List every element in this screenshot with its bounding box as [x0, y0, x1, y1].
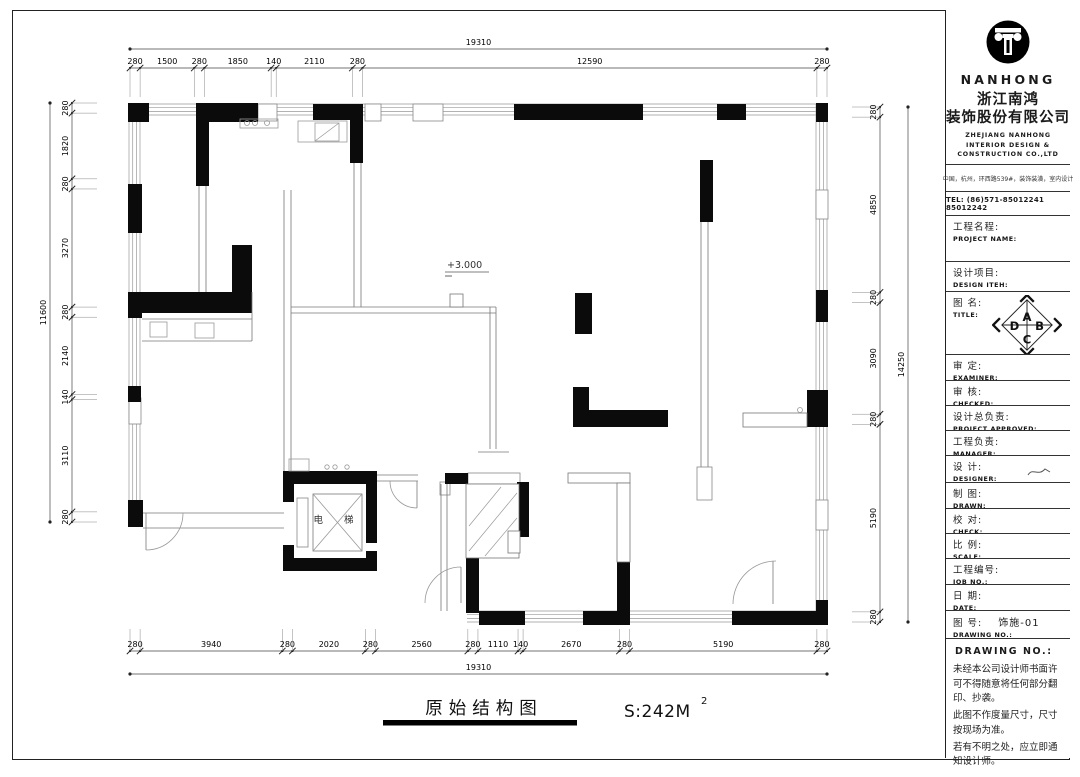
dim-label: 2140	[61, 346, 70, 366]
title-block-fields: 工程名程:PROJECT NAME:设计项目:DESIGN ITEH:图 名:T…	[946, 216, 1070, 639]
company-name-cn-2: 装饰股份有限公司	[946, 109, 1070, 127]
field-label-cn: 设计总负责:	[953, 409, 1010, 423]
dim-label: 1110	[488, 640, 508, 649]
orientation-compass-icon: ABCD	[992, 295, 1062, 355]
plan-area-label: S:242M	[624, 702, 691, 722]
dim-label: 5190	[869, 508, 878, 528]
dim-label: 2560	[411, 640, 431, 649]
field-label-cn: 审 核:	[953, 384, 982, 398]
field-examiner: 审 定:EXAMINER:	[946, 355, 1070, 381]
dim-label: 280	[869, 412, 878, 427]
field-label-cn: 图 名:	[953, 295, 982, 309]
door-swings	[146, 481, 776, 604]
field-date: 日 期:DATE:	[946, 585, 1070, 611]
dim-label: 1500	[157, 57, 177, 66]
company-name-en-3: CONSTRUCTION CO.,LTD	[946, 150, 1070, 159]
dim-label: 280	[869, 104, 878, 119]
dim-label: 280	[350, 57, 365, 66]
company-name-cn-1: 浙江南鸿	[946, 91, 1070, 109]
drawing-notes-header: DRAWING NO.:	[955, 646, 1063, 657]
dim-label: 280	[465, 640, 480, 649]
elevator-label: 电 梯	[313, 514, 362, 526]
dim-label: 280	[280, 640, 295, 649]
field-label-cn: 制 图:	[953, 486, 982, 500]
field-label-cn: 校 对:	[953, 512, 982, 526]
dim-label: 1850	[228, 57, 248, 66]
dim-label: 4850	[869, 195, 878, 215]
level-marker: +3.000	[447, 260, 482, 271]
dim-label: 280	[61, 176, 70, 191]
field-manager: 工程负责:MANAGER:	[946, 431, 1070, 456]
dim-label: 14250	[897, 352, 906, 377]
dim-label: 3090	[869, 348, 878, 368]
dim-label: 19310	[466, 663, 491, 672]
plan-title: 原始结构图	[425, 699, 543, 719]
dim-label: 280	[127, 57, 142, 66]
field-label-cn: 工程负责:	[953, 434, 999, 448]
field-label-cn: 图 号:	[953, 615, 982, 629]
field-label-cn: 设 计:	[953, 459, 982, 473]
drawing-sheet: 1931028015002801850140211028012590280280…	[0, 0, 1080, 771]
partition-walls	[142, 163, 807, 611]
field-design-item: 设计项目:DESIGN ITEH:	[946, 262, 1070, 292]
company-name-en-2: INTERIOR DESIGN &	[946, 141, 1070, 150]
dim-label: 3940	[201, 640, 221, 649]
nanhong-logo-icon	[985, 19, 1031, 65]
dim-label: 2020	[319, 640, 339, 649]
field-label-en: JOB NO.:	[953, 578, 1064, 585]
company-address: 中国，杭州，环西路539#，装饰装潢，室内设计	[946, 165, 1070, 192]
plan-area-superscript: 2	[701, 696, 707, 707]
title-block: NANHONG 浙江南鸿 装饰股份有限公司 ZHEJIANG NANHONG I…	[945, 10, 1070, 758]
field-designer: 设 计:DESIGNER:	[946, 456, 1070, 483]
dim-label: 12590	[577, 57, 602, 66]
compass-letter: B	[1035, 319, 1044, 333]
company-header: NANHONG 浙江南鸿 装饰股份有限公司 ZHEJIANG NANHONG I…	[946, 10, 1070, 165]
dim-label: 280	[814, 57, 829, 66]
field-label-en: DATE:	[953, 604, 1064, 611]
field-drawing-no: 图 号:饰施-01DRAWING NO.:	[946, 611, 1070, 639]
compass-letter: C	[1023, 332, 1032, 346]
dim-label: 280	[61, 509, 70, 524]
field-project-name: 工程名程:PROJECT NAME:	[946, 216, 1070, 262]
field-label-cn: 工程编号:	[953, 562, 999, 576]
dim-label: 19310	[466, 38, 491, 47]
dim-label: 2670	[561, 640, 581, 649]
field-label-cn: 工程名程:	[953, 219, 999, 233]
dim-label: 280	[814, 640, 829, 649]
dim-label: 280	[617, 640, 632, 649]
dim-label: 5190	[713, 640, 733, 649]
field-label-en: DRAWING NO.:	[953, 631, 1064, 639]
field-label-cn: 比 例:	[953, 537, 982, 551]
field-scale: 比 例:SCALE:	[946, 534, 1070, 559]
field-approved: 设计总负责:PROJECT APPROVED:	[946, 406, 1070, 431]
field-label-en: DRAWN:	[953, 502, 1064, 509]
floor-plan-svg: 1931028015002801850140211028012590280280…	[0, 0, 1080, 771]
compass-letter: A	[1023, 310, 1032, 324]
drawing-number-value: 饰施-01	[998, 614, 1039, 629]
dim-label: 280	[869, 290, 878, 305]
dim-label: 280	[192, 57, 207, 66]
field-drawn: 制 图:DRAWN:	[946, 483, 1070, 509]
dim-label: 280	[61, 100, 70, 115]
field-label-en: PROJECT NAME:	[953, 235, 1064, 243]
drawing-note: 此图不作度量尺寸，尺寸按现场为准。	[953, 709, 1063, 738]
designer-signature	[1026, 466, 1052, 478]
field-label-cn: 设计项目:	[953, 265, 999, 279]
field-label-en: DESIGN ITEH:	[953, 281, 1064, 289]
dim-label: 11600	[39, 300, 48, 325]
field-label-cn: 日 期:	[953, 588, 982, 602]
dim-label: 280	[363, 640, 378, 649]
field-label-en: EXAMINER:	[953, 374, 1064, 381]
drawing-note: 若有不明之处，应立即通知设计师。	[953, 741, 1063, 770]
dim-label: 1820	[61, 136, 70, 156]
plan-title-underline	[383, 720, 577, 726]
field-check: 校 对:CHECK:	[946, 509, 1070, 534]
dim-label: 280	[869, 609, 878, 624]
field-label-cn: 审 定:	[953, 358, 982, 372]
dim-label: 3270	[61, 238, 70, 258]
drawing-notes: DRAWING NO.: 未经本公司设计师书面许可不得随意将任何部分翻印、抄袭。…	[946, 639, 1070, 777]
field-checked: 审 核:CHECKED:	[946, 381, 1070, 406]
dim-label: 280	[61, 304, 70, 319]
dim-label: 2110	[304, 57, 324, 66]
field-title: 图 名:TITLE:ABCD	[946, 292, 1070, 355]
dim-label: 3110	[61, 446, 70, 466]
company-telephone: TEL: (86)571-85012241 85012242	[946, 192, 1070, 216]
company-wordmark: NANHONG	[946, 72, 1070, 87]
company-name-en-1: ZHEJIANG NANHONG	[946, 131, 1070, 140]
drawing-note: 未经本公司设计师书面许可不得随意将任何部分翻印、抄袭。	[953, 663, 1063, 707]
window-openings	[129, 104, 828, 530]
compass-letter: D	[1010, 319, 1020, 333]
dim-label: 280	[127, 640, 142, 649]
field-job-no: 工程编号:JOB NO.:	[946, 559, 1070, 585]
